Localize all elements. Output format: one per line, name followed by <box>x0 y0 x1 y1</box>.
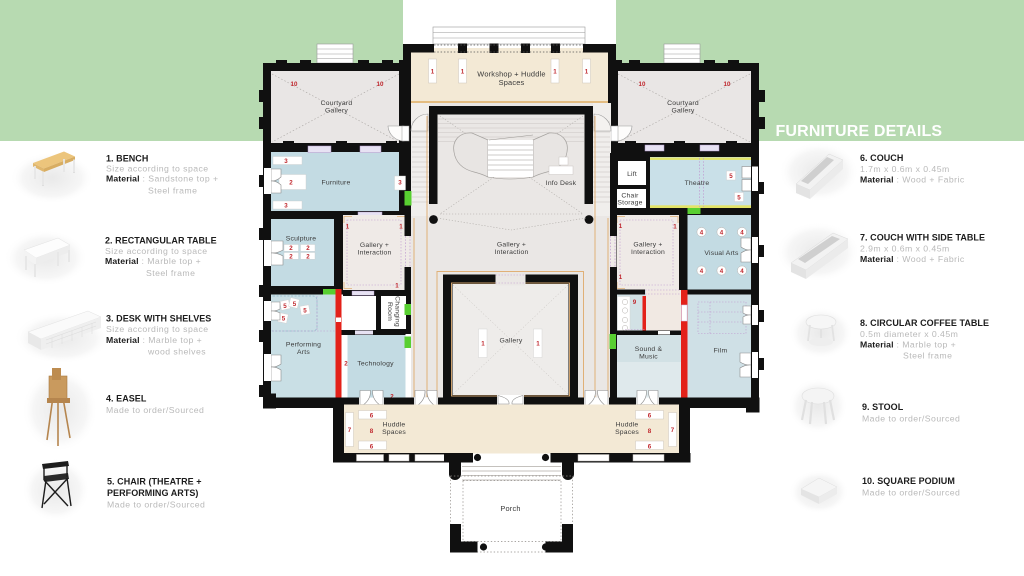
svg-text:1: 1 <box>619 223 623 230</box>
svg-text:FURNITURE DETAILS: FURNITURE DETAILS <box>776 123 943 140</box>
svg-text:Music: Music <box>639 354 658 361</box>
svg-text:1: 1 <box>395 283 399 290</box>
svg-text:6. COUCH: 6. COUCH <box>860 153 903 163</box>
svg-text:1: 1 <box>461 69 465 76</box>
svg-text:Material : Marble top +: Material : Marble top + <box>860 340 956 350</box>
svg-text:8: 8 <box>370 428 374 435</box>
svg-text:Performing: Performing <box>286 342 321 349</box>
svg-text:Steel frame: Steel frame <box>148 186 197 196</box>
svg-text:6: 6 <box>370 413 374 420</box>
svg-text:1.7m x 0.6m x 0.45m: 1.7m x 0.6m x 0.45m <box>860 164 950 174</box>
svg-text:1: 1 <box>585 69 589 76</box>
svg-text:Courtyard: Courtyard <box>321 100 353 107</box>
svg-text:2. RECTANGULAR TABLE: 2. RECTANGULAR TABLE <box>105 236 217 246</box>
svg-text:Made to order/Sourced: Made to order/Sourced <box>862 414 960 424</box>
svg-text:6: 6 <box>648 413 652 420</box>
svg-text:1: 1 <box>536 341 540 348</box>
svg-text:8. CIRCULAR COFFEE TABLE: 8. CIRCULAR COFFEE TABLE <box>860 318 989 328</box>
svg-text:2: 2 <box>289 253 293 260</box>
svg-text:Arts: Arts <box>297 349 310 356</box>
svg-text:4: 4 <box>700 268 704 275</box>
svg-text:8: 8 <box>648 428 652 435</box>
svg-text:Steel frame: Steel frame <box>903 351 952 361</box>
svg-text:Changing: Changing <box>394 296 401 327</box>
svg-text:3: 3 <box>398 180 402 187</box>
svg-text:2: 2 <box>306 253 310 260</box>
svg-text:5: 5 <box>283 303 287 310</box>
svg-text:PERFORMING ARTS): PERFORMING ARTS) <box>107 488 198 498</box>
svg-text:Size according to space: Size according to space <box>105 246 208 256</box>
svg-text:Interaction: Interaction <box>631 249 665 256</box>
svg-text:Spaces: Spaces <box>382 429 406 436</box>
svg-text:Chair: Chair <box>621 193 639 200</box>
svg-text:5. CHAIR (THEATRE +: 5. CHAIR (THEATRE + <box>107 477 202 487</box>
svg-text:Material : Sandstone top +: Material : Sandstone top + <box>106 174 219 184</box>
svg-text:1: 1 <box>346 224 350 231</box>
svg-text:10: 10 <box>377 81 384 88</box>
svg-text:1: 1 <box>431 69 435 76</box>
svg-text:3: 3 <box>284 158 288 165</box>
svg-text:Interaction: Interaction <box>495 249 529 256</box>
svg-text:Visual Arts: Visual Arts <box>704 250 739 257</box>
svg-text:Size according to space: Size according to space <box>106 324 209 334</box>
svg-text:6: 6 <box>370 444 374 451</box>
svg-text:Material : Wood + Fabric: Material : Wood + Fabric <box>860 175 965 185</box>
svg-text:Made to order/Sourced: Made to order/Sourced <box>106 405 204 415</box>
svg-text:Sculpture: Sculpture <box>286 236 317 243</box>
svg-text:10. SQUARE PODIUM: 10. SQUARE PODIUM <box>862 476 955 486</box>
svg-text:10: 10 <box>639 81 646 88</box>
svg-text:1. BENCH: 1. BENCH <box>106 154 148 164</box>
svg-text:4: 4 <box>740 230 744 237</box>
svg-text:Gallery +: Gallery + <box>497 242 526 249</box>
svg-text:4: 4 <box>700 230 704 237</box>
svg-text:1: 1 <box>673 224 677 231</box>
svg-text:Theatre: Theatre <box>685 180 710 187</box>
svg-text:7: 7 <box>671 427 675 434</box>
svg-text:5: 5 <box>729 173 733 180</box>
svg-text:10: 10 <box>291 81 298 88</box>
svg-text:Size according to space: Size according to space <box>106 164 209 174</box>
svg-text:1: 1 <box>399 224 403 231</box>
svg-text:4: 4 <box>720 230 724 237</box>
svg-text:4. EASEL: 4. EASEL <box>106 394 147 404</box>
svg-text:Huddle: Huddle <box>383 422 406 429</box>
svg-text:2: 2 <box>289 245 293 252</box>
svg-text:2.9m x 0.6m x 0.45m: 2.9m x 0.6m x 0.45m <box>860 244 950 254</box>
svg-text:Gallery +: Gallery + <box>633 242 662 249</box>
svg-text:Sound &: Sound & <box>635 346 663 353</box>
svg-text:9. STOOL: 9. STOOL <box>862 402 904 412</box>
svg-text:4: 4 <box>720 268 724 275</box>
svg-text:Lift: Lift <box>627 171 637 178</box>
svg-text:Huddle: Huddle <box>616 422 639 429</box>
svg-text:Gallery +: Gallery + <box>360 242 389 249</box>
svg-text:wood shelves: wood shelves <box>147 347 206 357</box>
svg-text:Gallery: Gallery <box>325 108 348 115</box>
svg-text:Spaces: Spaces <box>499 78 525 87</box>
svg-text:6: 6 <box>648 444 652 451</box>
svg-text:Spaces: Spaces <box>615 429 639 436</box>
svg-text:2: 2 <box>289 180 293 187</box>
svg-text:5: 5 <box>293 301 297 308</box>
svg-text:2: 2 <box>344 361 348 368</box>
svg-text:3. DESK WITH SHELVES: 3. DESK WITH SHELVES <box>106 314 211 324</box>
svg-text:10: 10 <box>724 81 731 88</box>
svg-text:Technology: Technology <box>357 361 394 368</box>
svg-text:Made to order/Sourced: Made to order/Sourced <box>862 488 960 498</box>
svg-text:3: 3 <box>284 203 288 210</box>
svg-text:5: 5 <box>303 308 307 315</box>
svg-text:1: 1 <box>481 341 485 348</box>
svg-text:7: 7 <box>348 427 352 434</box>
svg-text:0.5m diameter x 0.45m: 0.5m diameter x 0.45m <box>860 329 958 339</box>
svg-text:2: 2 <box>306 245 310 252</box>
svg-text:Steel frame: Steel frame <box>146 268 195 278</box>
svg-text:1: 1 <box>553 69 557 76</box>
svg-text:7. COUCH WITH SIDE TABLE: 7. COUCH WITH SIDE TABLE <box>860 233 985 243</box>
svg-text:Gallery: Gallery <box>500 338 523 345</box>
svg-text:1: 1 <box>619 274 623 281</box>
svg-text:Film: Film <box>714 348 728 355</box>
svg-text:Interaction: Interaction <box>358 250 392 257</box>
svg-text:Courtyard: Courtyard <box>667 100 699 107</box>
svg-text:Furniture: Furniture <box>322 180 351 187</box>
svg-text:5: 5 <box>737 195 741 202</box>
svg-text:Material : Marble top +: Material : Marble top + <box>106 335 202 345</box>
svg-text:Storage: Storage <box>617 200 642 207</box>
svg-text:Made to order/Sourced: Made to order/Sourced <box>107 500 205 510</box>
svg-text:5: 5 <box>282 316 286 323</box>
svg-text:Room: Room <box>386 302 393 321</box>
svg-text:Material : Marble top +: Material : Marble top + <box>105 256 201 266</box>
svg-text:Info Desk: Info Desk <box>546 180 577 187</box>
svg-text:9: 9 <box>633 299 637 306</box>
svg-text:Porch: Porch <box>500 504 520 513</box>
svg-text:4: 4 <box>740 268 744 275</box>
svg-text:Gallery: Gallery <box>672 108 695 115</box>
svg-text:Material : Wood + Fabric: Material : Wood + Fabric <box>860 254 965 264</box>
